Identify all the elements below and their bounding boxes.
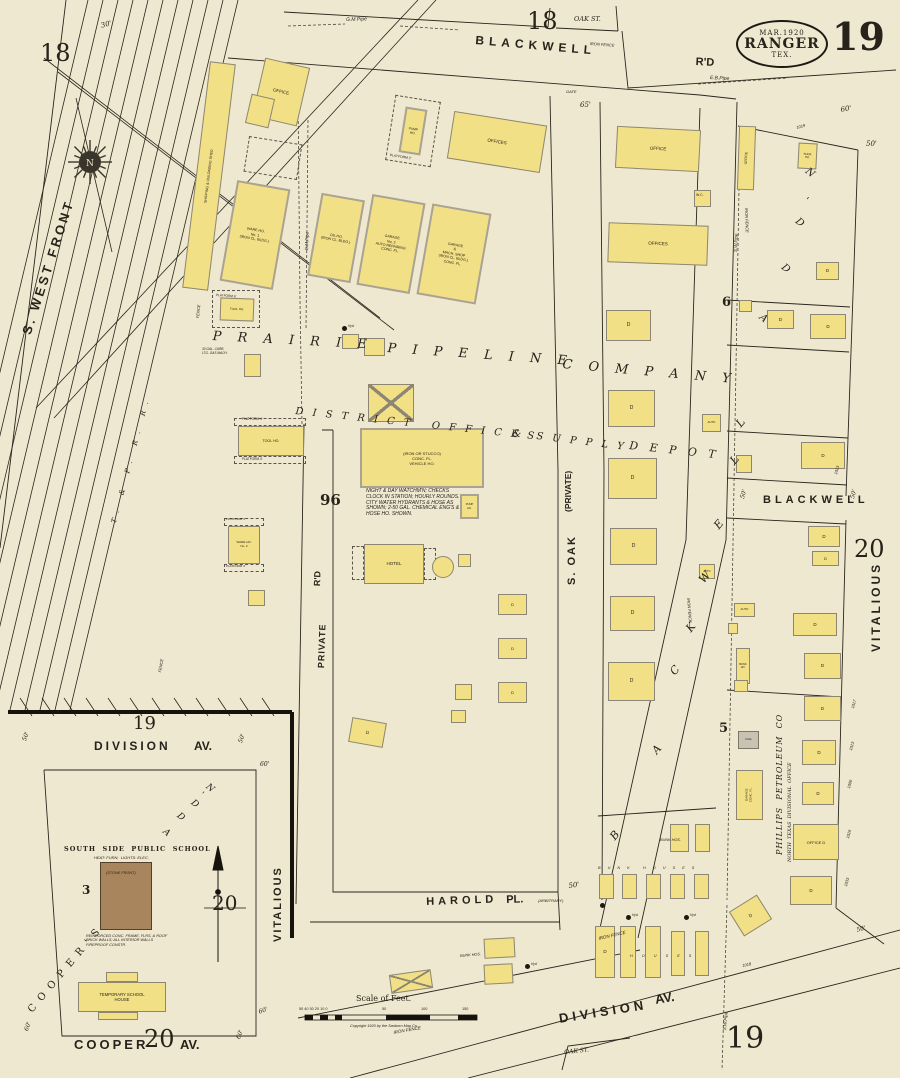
map-label-e-m-pipe: E.M.Pipe [304,232,310,250]
building-item [646,874,661,899]
building-ware-ho-no-2: WARE HO. No. 2 [228,526,260,564]
building-label: WARE HO. No. 2 [236,541,251,549]
map-label-north-texas-divisional-office: NORTH TEXAS DIVISIONAL OFFICE [788,762,794,862]
compass-spike [98,146,106,154]
map-label-20: 20 [854,536,885,564]
map-label-division: DIVISION [94,740,171,754]
map-label-3: 3 [82,884,90,898]
building-label: D [365,729,369,735]
map-label-gate: GATE [566,90,577,95]
hydrant-label: Hyd. [690,913,697,917]
swf-street-edge [0,0,66,548]
track-line [0,0,118,710]
building-d: D [804,653,841,679]
map-label-19: 19 [133,714,156,735]
map-label-60: 60' [260,762,269,769]
map-label-scale-of-feet: Scale of Feet. [356,994,411,1003]
map-label-arbitrary: (ARBITRARY) [538,899,563,904]
building-item [695,824,710,852]
building-label: OFFICES [487,138,507,147]
building-label: OFFICES [648,241,668,247]
bunk-block-top [598,808,716,816]
building-label: D [631,475,635,481]
track-line [0,0,163,710]
building-garage-conc-fl: GARAGE CONC. FL. [736,770,763,820]
building-item [244,354,261,377]
building-d: D [610,528,657,565]
building-item [739,300,752,312]
map-label-platform-4: PLATFORM 4' [226,565,245,568]
building-label: D [511,690,514,695]
building-d: D [810,314,846,339]
map-label-private: PRIVATE [316,623,328,668]
building-d: D [610,596,655,631]
hydrant-dot: Hyd. [342,326,347,331]
oval-city: RANGER [744,37,820,51]
map-label-50: 50' [866,140,877,148]
building-label: D [813,622,816,628]
map-label-iron-fence: IRON FENCE [743,208,748,233]
map-label-s-oak: S. OAK [566,535,579,585]
building-label: D [779,317,782,323]
track-line [25,0,193,710]
building-label: COAL [745,738,752,741]
building-hotel: HOTEL [364,544,424,584]
building-office: OFFICE [615,126,701,172]
hydrant-label: Hyd. [348,324,355,328]
building-label: GARAGE No. 2 AUTO REPAIRING CONC. FL. [374,233,407,256]
building-d: D [793,613,837,636]
building-item [695,931,709,976]
building-label: OFFICE [272,87,289,96]
building-item [98,1012,138,1020]
building-label: BUNK HO. [739,663,746,669]
sw-pipe-line [722,128,740,1070]
building-temporary-school-house: TEMPORARY SCHOOL HOUSE [78,982,166,1012]
building-d: D [812,551,839,566]
map-label-south-side-public-school: SOUTH SIDE PUBLIC SCHOOL [64,846,211,853]
building-tool-ho: TOOL HO. [220,297,255,321]
building-d: D [802,782,834,805]
building-item [734,680,748,692]
map-label-oak-st: OAK ST. [574,16,601,23]
map-label-copyright-1920-by-the-sanborn-: Copyright 1920 by the Sanborn Map Co. [350,1024,418,1028]
building-label: D [821,453,824,459]
map-label-r-d: R'D [695,56,714,70]
building-d: D [808,526,840,547]
compass-spike [100,155,106,157]
building-label: GARAGE & MACH. SHOP (IRON CL. BLDG.) CON… [437,240,470,267]
track-line [0,0,88,710]
map-label-r-d: R'D [312,571,323,586]
building-label: D [824,556,827,561]
map-label-pl: PL. [506,893,524,906]
building-item [248,590,265,606]
compass-spike [74,146,82,154]
building-d: D [498,638,527,659]
building-item [728,623,738,634]
em-pipe-line [306,120,308,330]
map-label-h-o-u-s-e-s: H O U S E S [643,866,697,870]
building-item [432,556,454,578]
track-line [40,0,208,710]
building-label: D [809,888,812,894]
map-label-20: 20 [144,1026,175,1054]
map-label-platform-4: PLATFORM 4' [242,458,262,462]
map-label-platform-4: PLATFORM 4' [242,418,262,422]
building-d: D [767,310,794,329]
building-item [483,937,515,959]
building-item [483,963,513,984]
building-label: TOOL HO. [230,307,244,311]
building-item [599,874,614,899]
building-iron-or-stucco-conc-fl-vehicle: (IRON OR STUCCO) CONC. FL. VEHICLE HO. [360,428,484,488]
sanborn-map-sheet: N MAR.1920 RANGER TEX. 19 SHIPPING & UNL… [0,0,900,1078]
building-pump-ho: PUMP HO. [460,494,479,519]
building-label: D [630,405,634,411]
map-label-18: 18 [40,40,71,68]
building-label: D [817,750,820,756]
building-auto: AUTO [734,603,755,617]
map-label-cooper: COOPER [74,1038,148,1053]
map-label-stone-front: (STONE FRONT) [106,871,136,875]
building-d: D [606,310,651,341]
track-line [55,0,223,710]
building-label: D [826,268,829,274]
building-label: D [821,663,824,669]
hydrant-label: Hyd. [632,913,639,917]
map-label-e-b-pipe: E.B.Pipe [710,76,730,83]
building-auto: AUTO [702,414,721,432]
sheet-number: 19 [832,14,885,59]
compass-spike [94,146,96,152]
map-label-50: 50 [382,1007,386,1011]
compass-spike [100,166,106,168]
map-label-av: AV. [654,990,676,1008]
building-label: AUTO [708,421,716,424]
map-label-100: 100 [421,1007,427,1011]
map-label-h-o-u-s-e-s: H O U S E S [630,954,695,958]
building-item [670,874,685,899]
map-label-av: AV. [194,740,212,754]
building-item [106,972,138,982]
map-label-5: 5 [719,722,728,737]
map-label-50: 50' [568,880,580,889]
building-d: D [498,682,527,703]
building-label: D [826,324,829,330]
track-line [10,0,178,710]
compass-spike [74,166,80,168]
compass-spike [83,146,85,152]
map-label-20: 20 [212,892,237,915]
building-label: D [627,322,631,328]
building-label: D [632,543,636,549]
building-label: D [822,534,825,540]
map-label-phillips-petroleum-co: PHILLIPS PETROLEUM CO [775,714,784,855]
map-label-platform-4: PLATFORM 4' [226,518,245,521]
hydrant-dot: Hyd. [626,915,631,920]
compass-spike [98,170,106,178]
map-label-65: 65' [580,101,591,109]
map-label-bunk-hos: BUNK HOS. [660,838,681,842]
building-label: D [603,949,606,955]
map-label-av: AV. [180,1038,200,1053]
building-label: D [631,610,635,616]
building-item [455,684,472,700]
map-label-g-m-pipe: G.M.Pipe [346,17,367,23]
building-d: D [790,876,832,905]
map-label-b-u-n-k: B U N K [598,866,633,870]
private-rd-west [296,424,304,904]
map-label-vitalious: VITALIOUS [870,562,884,652]
hydrant-label: Hyd. [531,962,538,966]
map-label-30-gal-carb-ltg-gas-mach: 30 GAL. CARB. LTG. GAS MACH. [202,348,228,355]
building-label: D [816,791,819,797]
track-line [0,0,103,710]
map-label-w-c: W.C. [696,193,704,197]
building-label: D [511,646,514,651]
building-label: TOOL HO. [263,439,280,443]
compass-spike [74,170,82,178]
map-label-19: 19 [726,1022,764,1057]
building-label: D [821,706,824,712]
building-label: D [748,912,754,918]
hydrant-dot: Hyd. [525,964,530,969]
building-d: D [608,662,655,701]
map-label-heat-furn-lights-elec: HEAT: FURN; LIGHTS: ELEC. [94,856,149,861]
map-label-s-w-pipe: S.W.Pipe [733,233,739,252]
hydrant-dot: Hyd. [684,915,689,920]
building-label: WARE HO. No. 1 (IRON CL. BLDG.) [239,226,271,244]
building-d: D [608,390,655,427]
scale-bar [305,1015,477,1020]
building-bunk-ho: BUNK HO. [797,143,817,170]
building-item [451,710,466,723]
building-label: OFFICE D [807,840,826,845]
map-label-150: 150 [462,1007,468,1011]
building-item [645,926,661,978]
map-label-6: 6 [722,296,731,311]
building-bunk-ho: BUNK HO. [736,648,750,684]
map-label-night-day-watchm-n-checks-cloc: NIGHT & DAY WATCHM'N; CHECKS CLOCK IN ST… [366,489,459,518]
map-label-50-40-30-20-10-0: 50 40 30 20 10 0 [299,1007,328,1011]
map-label-96: 96 [320,492,341,509]
building-d: D [804,696,841,721]
building-item [622,874,637,899]
building-d: D [608,458,657,499]
building-offices: OFFICES [607,222,708,265]
building-label: BUNK HO. [803,152,811,159]
building-d: D [802,740,836,765]
building-label: D [511,602,514,607]
map-label-iron-fence: IRON FENCE [685,598,692,623]
building-d: D [816,262,839,280]
building-label: OFFICE [650,146,667,152]
building-item [458,554,471,567]
building-office: OFFICE [737,126,756,191]
compass-north-letter: N [86,159,94,169]
building-label: OFFICE [744,152,749,165]
building-label: PUMP HO. [408,126,418,135]
building-label: PUMP HO. [466,503,474,509]
map-label-vitalious: VITALIOUS [272,866,285,942]
building-item [694,874,709,899]
map-label-harold: HAROLD [426,894,497,909]
building-label: SHIPPING & UNLOADING SHED [203,149,214,203]
compass-spike [74,155,80,157]
building-label: OIL HO. (IRON CL. BLDG.) [321,231,352,245]
building-label: TEMPORARY SCHOOL HOUSE [99,992,144,1003]
building-label: GARAGE CONC. FL. [746,788,754,803]
map-label-18: 18 [527,8,558,36]
s-oak-street-lines [550,96,604,930]
hydrant-dot [600,903,605,908]
building-coal: COAL [738,731,759,749]
building-label: D [630,678,634,684]
building-d: D [498,594,527,615]
building-item [352,546,364,580]
building-office-d: OFFICE D [793,824,839,860]
building-tool-ho: TOOL HO. [238,426,304,456]
building-label: AUTO [741,608,749,611]
publisher-oval: MAR.1920 RANGER TEX. [736,20,828,68]
building-label: (IRON OR STUCCO) CONC. FL. VEHICLE HO. [403,451,441,466]
track-line [0,0,148,710]
oval-state: TEX. [772,51,793,59]
compass-rose-icon: N [68,140,112,184]
building-label: HOTEL [386,561,401,567]
compass-spike [83,172,85,178]
map-label-private: (PRIVATE) [564,471,574,512]
